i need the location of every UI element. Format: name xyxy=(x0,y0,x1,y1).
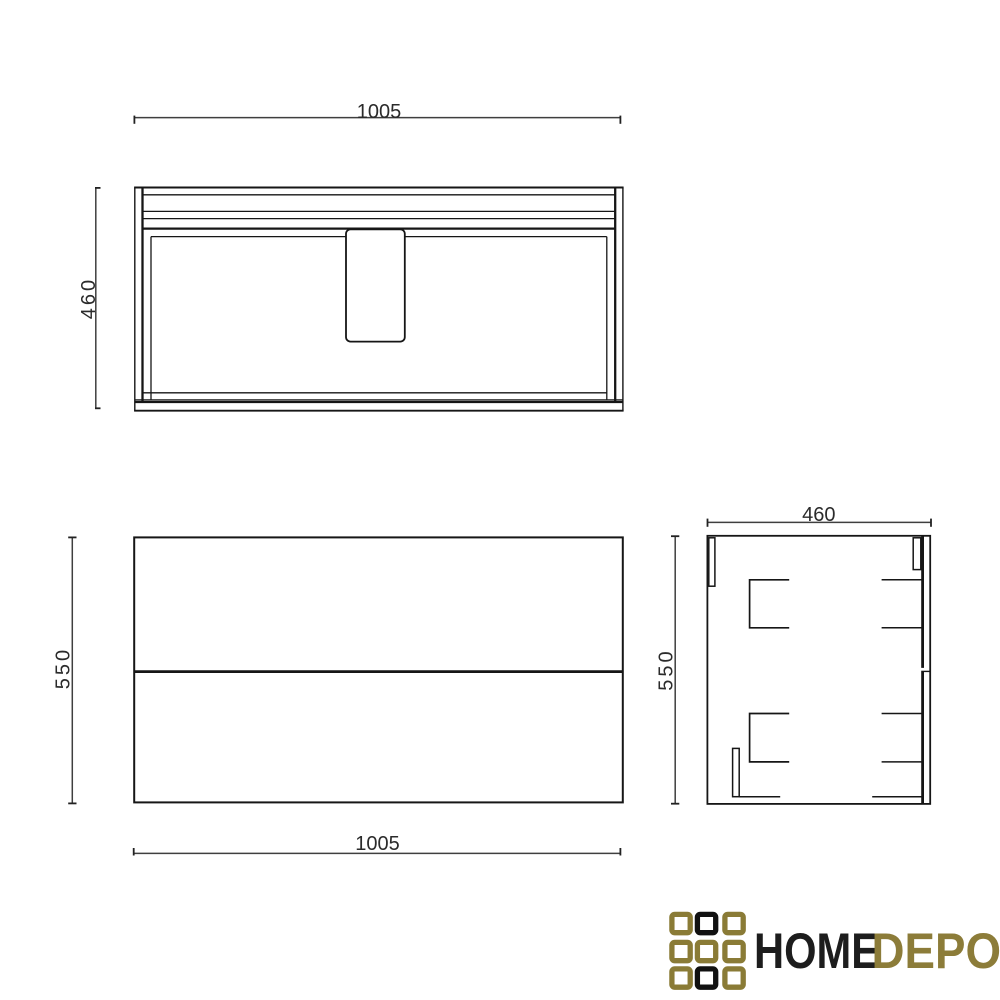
svg-text:1005: 1005 xyxy=(357,101,402,123)
svg-text:1005: 1005 xyxy=(355,833,400,855)
svg-text:550: 550 xyxy=(656,648,678,690)
svg-text:460: 460 xyxy=(78,277,100,319)
svg-text:550: 550 xyxy=(53,647,75,689)
svg-text:DEPO: DEPO xyxy=(872,922,1000,979)
svg-text:HOME: HOME xyxy=(754,922,879,979)
svg-text:460: 460 xyxy=(802,504,835,526)
